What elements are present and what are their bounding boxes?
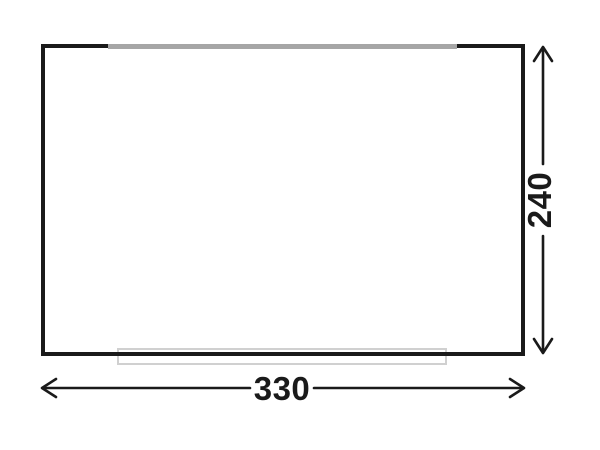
floor-plan-canvas: 330 240 bbox=[0, 0, 600, 450]
height-dimension-label: 240 bbox=[523, 150, 557, 250]
width-dimension-label: 330 bbox=[232, 372, 332, 406]
